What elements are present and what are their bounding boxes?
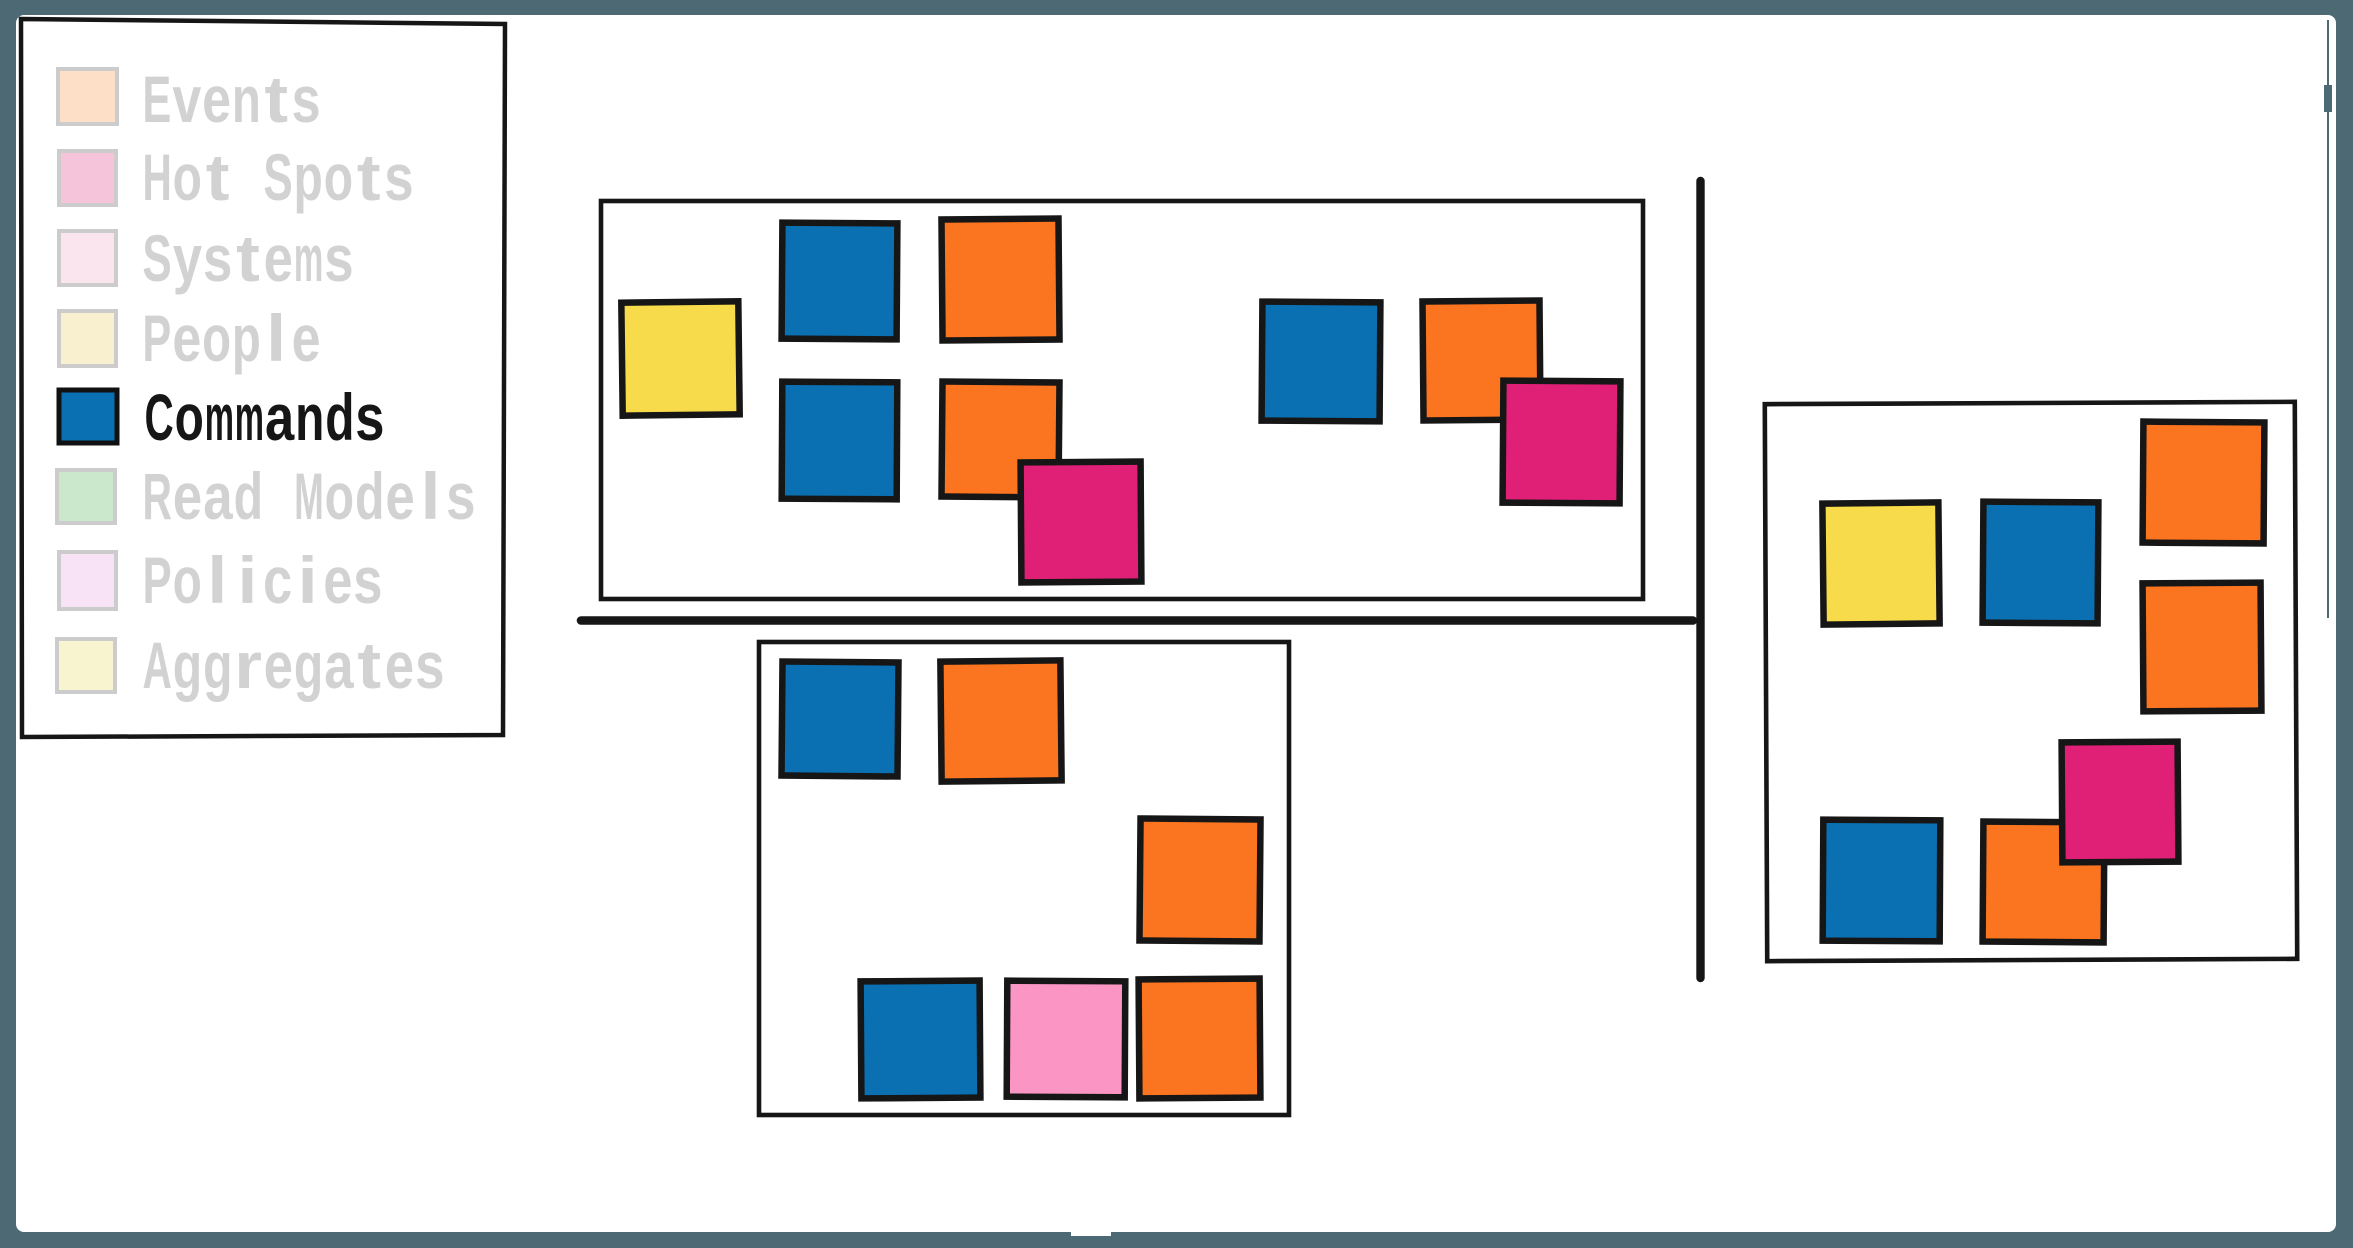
svg-text:y: y (173, 221, 202, 295)
svg-text:s: s (203, 221, 232, 295)
svg-text:E: E (142, 62, 171, 136)
svg-text:o: o (324, 142, 353, 215)
svg-text:e: e (385, 628, 414, 702)
svg-text:s: s (355, 380, 384, 454)
svg-text:g: g (203, 630, 232, 703)
svg-text:d: d (234, 461, 263, 534)
svg-text:C: C (144, 380, 173, 455)
svg-text:a: a (203, 459, 233, 533)
svg-text:A: A (142, 628, 171, 703)
svg-text:d: d (325, 382, 354, 455)
svg-text:t: t (357, 140, 381, 214)
svg-text:m: m (294, 223, 323, 296)
svg-text:e: e (385, 459, 414, 533)
svg-text:o: o (173, 545, 202, 618)
svg-text:i: i (237, 543, 257, 617)
svg-text:P: P (142, 301, 171, 375)
svg-text:n: n (295, 382, 324, 455)
svg-text:m: m (235, 382, 264, 455)
svg-text:l: l (207, 543, 227, 617)
svg-text:e: e (323, 543, 352, 617)
svg-text:s: s (292, 62, 321, 136)
svg-text:o: o (173, 142, 202, 215)
svg-text:t: t (236, 221, 260, 295)
svg-text:t: t (206, 140, 230, 214)
svg-text:e: e (172, 301, 201, 375)
svg-text:c: c (263, 543, 292, 617)
svg-text:p: p (294, 142, 323, 215)
svg-text:e: e (202, 62, 231, 136)
svg-text:t: t (264, 62, 288, 136)
svg-text:v: v (172, 62, 201, 136)
svg-text:S: S (263, 140, 292, 214)
svg-text:H: H (142, 140, 171, 215)
svg-text:o: o (175, 382, 204, 455)
svg-text:R: R (142, 459, 171, 534)
svg-text:s: s (324, 221, 353, 295)
svg-text:o: o (325, 461, 354, 534)
svg-text:e: e (264, 221, 293, 295)
svg-text:n: n (232, 63, 261, 137)
svg-text:o: o (202, 302, 231, 376)
svg-text:t: t (357, 628, 381, 702)
svg-text:d: d (355, 461, 384, 534)
svg-text:l: l (421, 459, 441, 533)
svg-text:s: s (384, 140, 413, 214)
svg-text:s: s (446, 459, 475, 533)
svg-text:m: m (205, 382, 234, 455)
svg-text:S: S (142, 221, 171, 295)
svg-text:M: M (294, 460, 323, 534)
svg-text:a: a (324, 628, 354, 702)
svg-text:p: p (232, 302, 261, 376)
svg-text:e: e (173, 459, 202, 533)
svg-text:l: l (266, 301, 286, 375)
svg-text:i: i (298, 543, 318, 617)
svg-text:r: r (234, 628, 262, 702)
svg-text:s: s (415, 628, 444, 702)
svg-text:P: P (142, 543, 171, 617)
svg-text:s: s (353, 543, 382, 617)
svg-text:a: a (265, 380, 295, 454)
svg-text:e: e (264, 628, 293, 702)
svg-text:e: e (292, 301, 321, 375)
svg-text:g: g (294, 630, 323, 703)
svg-text:g: g (173, 630, 202, 703)
